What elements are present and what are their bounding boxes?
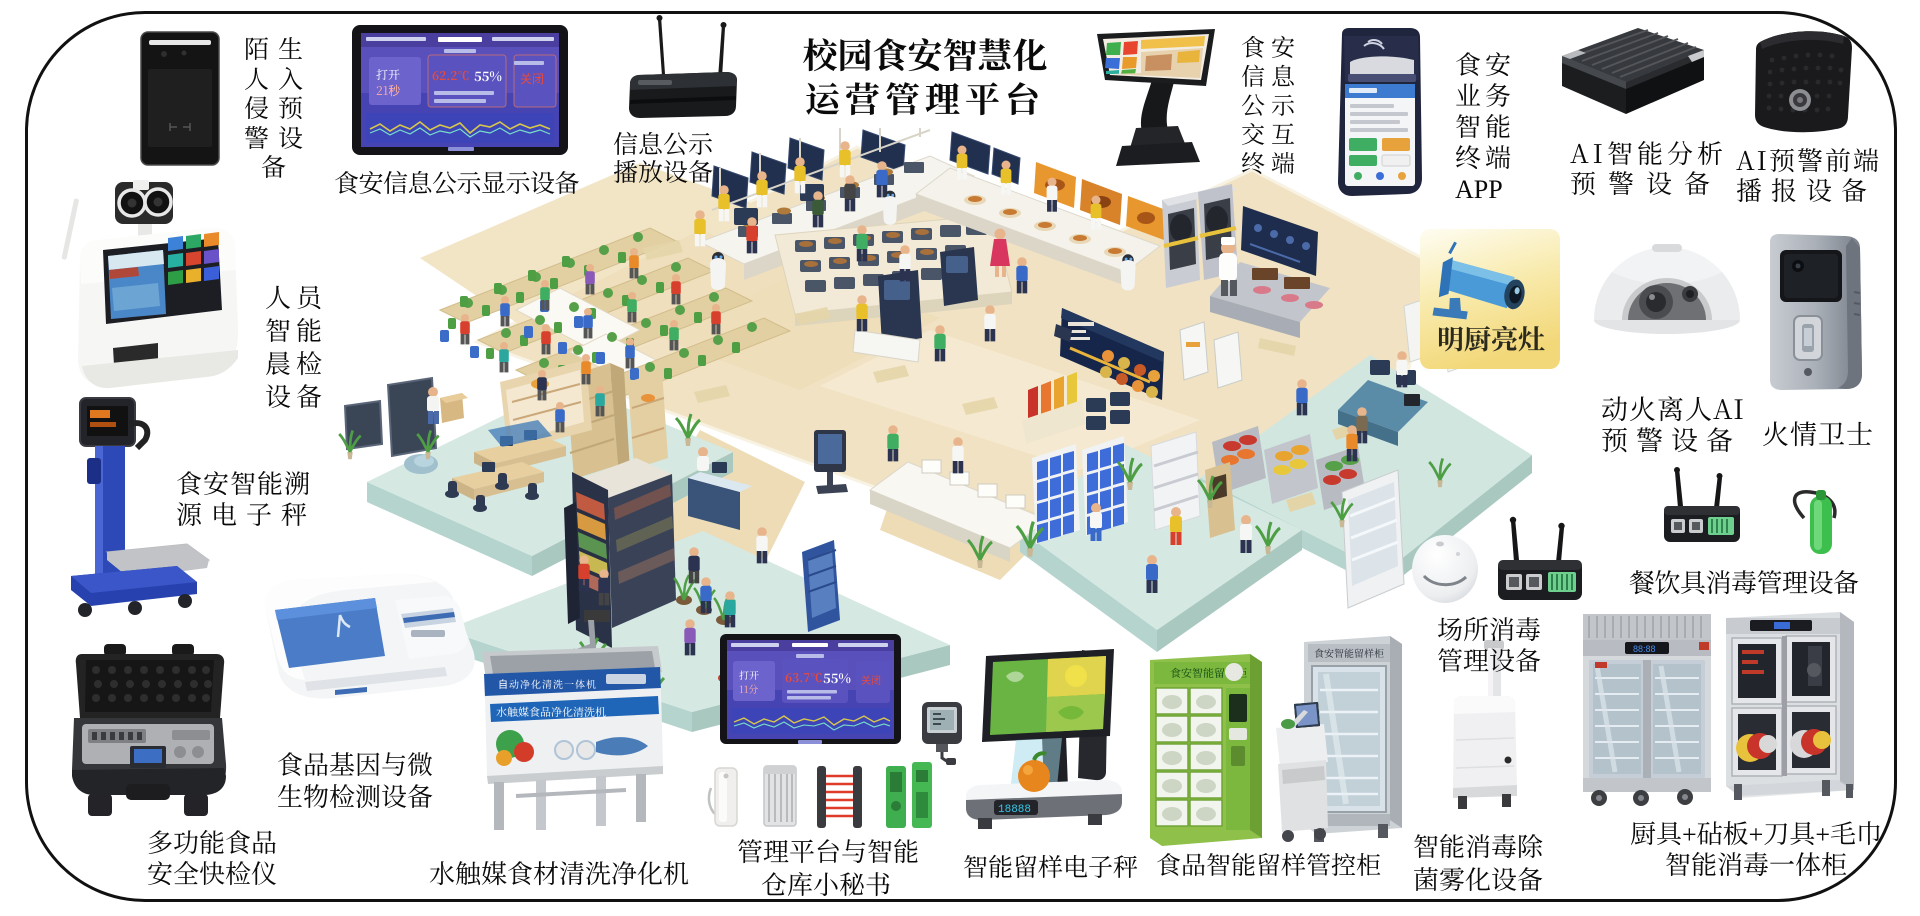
svg-text:明厨亮灶: 明厨亮灶 bbox=[1437, 318, 1545, 357]
svg-text:55%: 55% bbox=[823, 668, 851, 687]
svg-text:63.7℃: 63.7℃ bbox=[785, 669, 822, 686]
svg-text:关闭: 关闭 bbox=[520, 70, 544, 87]
svg-text:打开: 打开 bbox=[376, 66, 400, 83]
svg-text:水触媒食品净化清洗机: 水触媒食品净化清洗机 bbox=[496, 704, 606, 720]
svg-text:11分: 11分 bbox=[739, 681, 758, 696]
svg-text:62.2℃: 62.2℃ bbox=[432, 67, 469, 84]
svg-text:88:88: 88:88 bbox=[1633, 644, 1656, 654]
svg-text:21秒: 21秒 bbox=[376, 82, 400, 99]
svg-text:18888: 18888 bbox=[998, 804, 1031, 816]
svg-text:打开: 打开 bbox=[739, 667, 759, 682]
svg-text:食安智能留样柜: 食安智能留样柜 bbox=[1314, 645, 1384, 660]
svg-text:自动净化清洗一体机: 自动净化清洗一体机 bbox=[498, 676, 597, 691]
svg-text:55%: 55% bbox=[474, 66, 502, 85]
svg-text:关闭: 关闭 bbox=[861, 672, 881, 687]
